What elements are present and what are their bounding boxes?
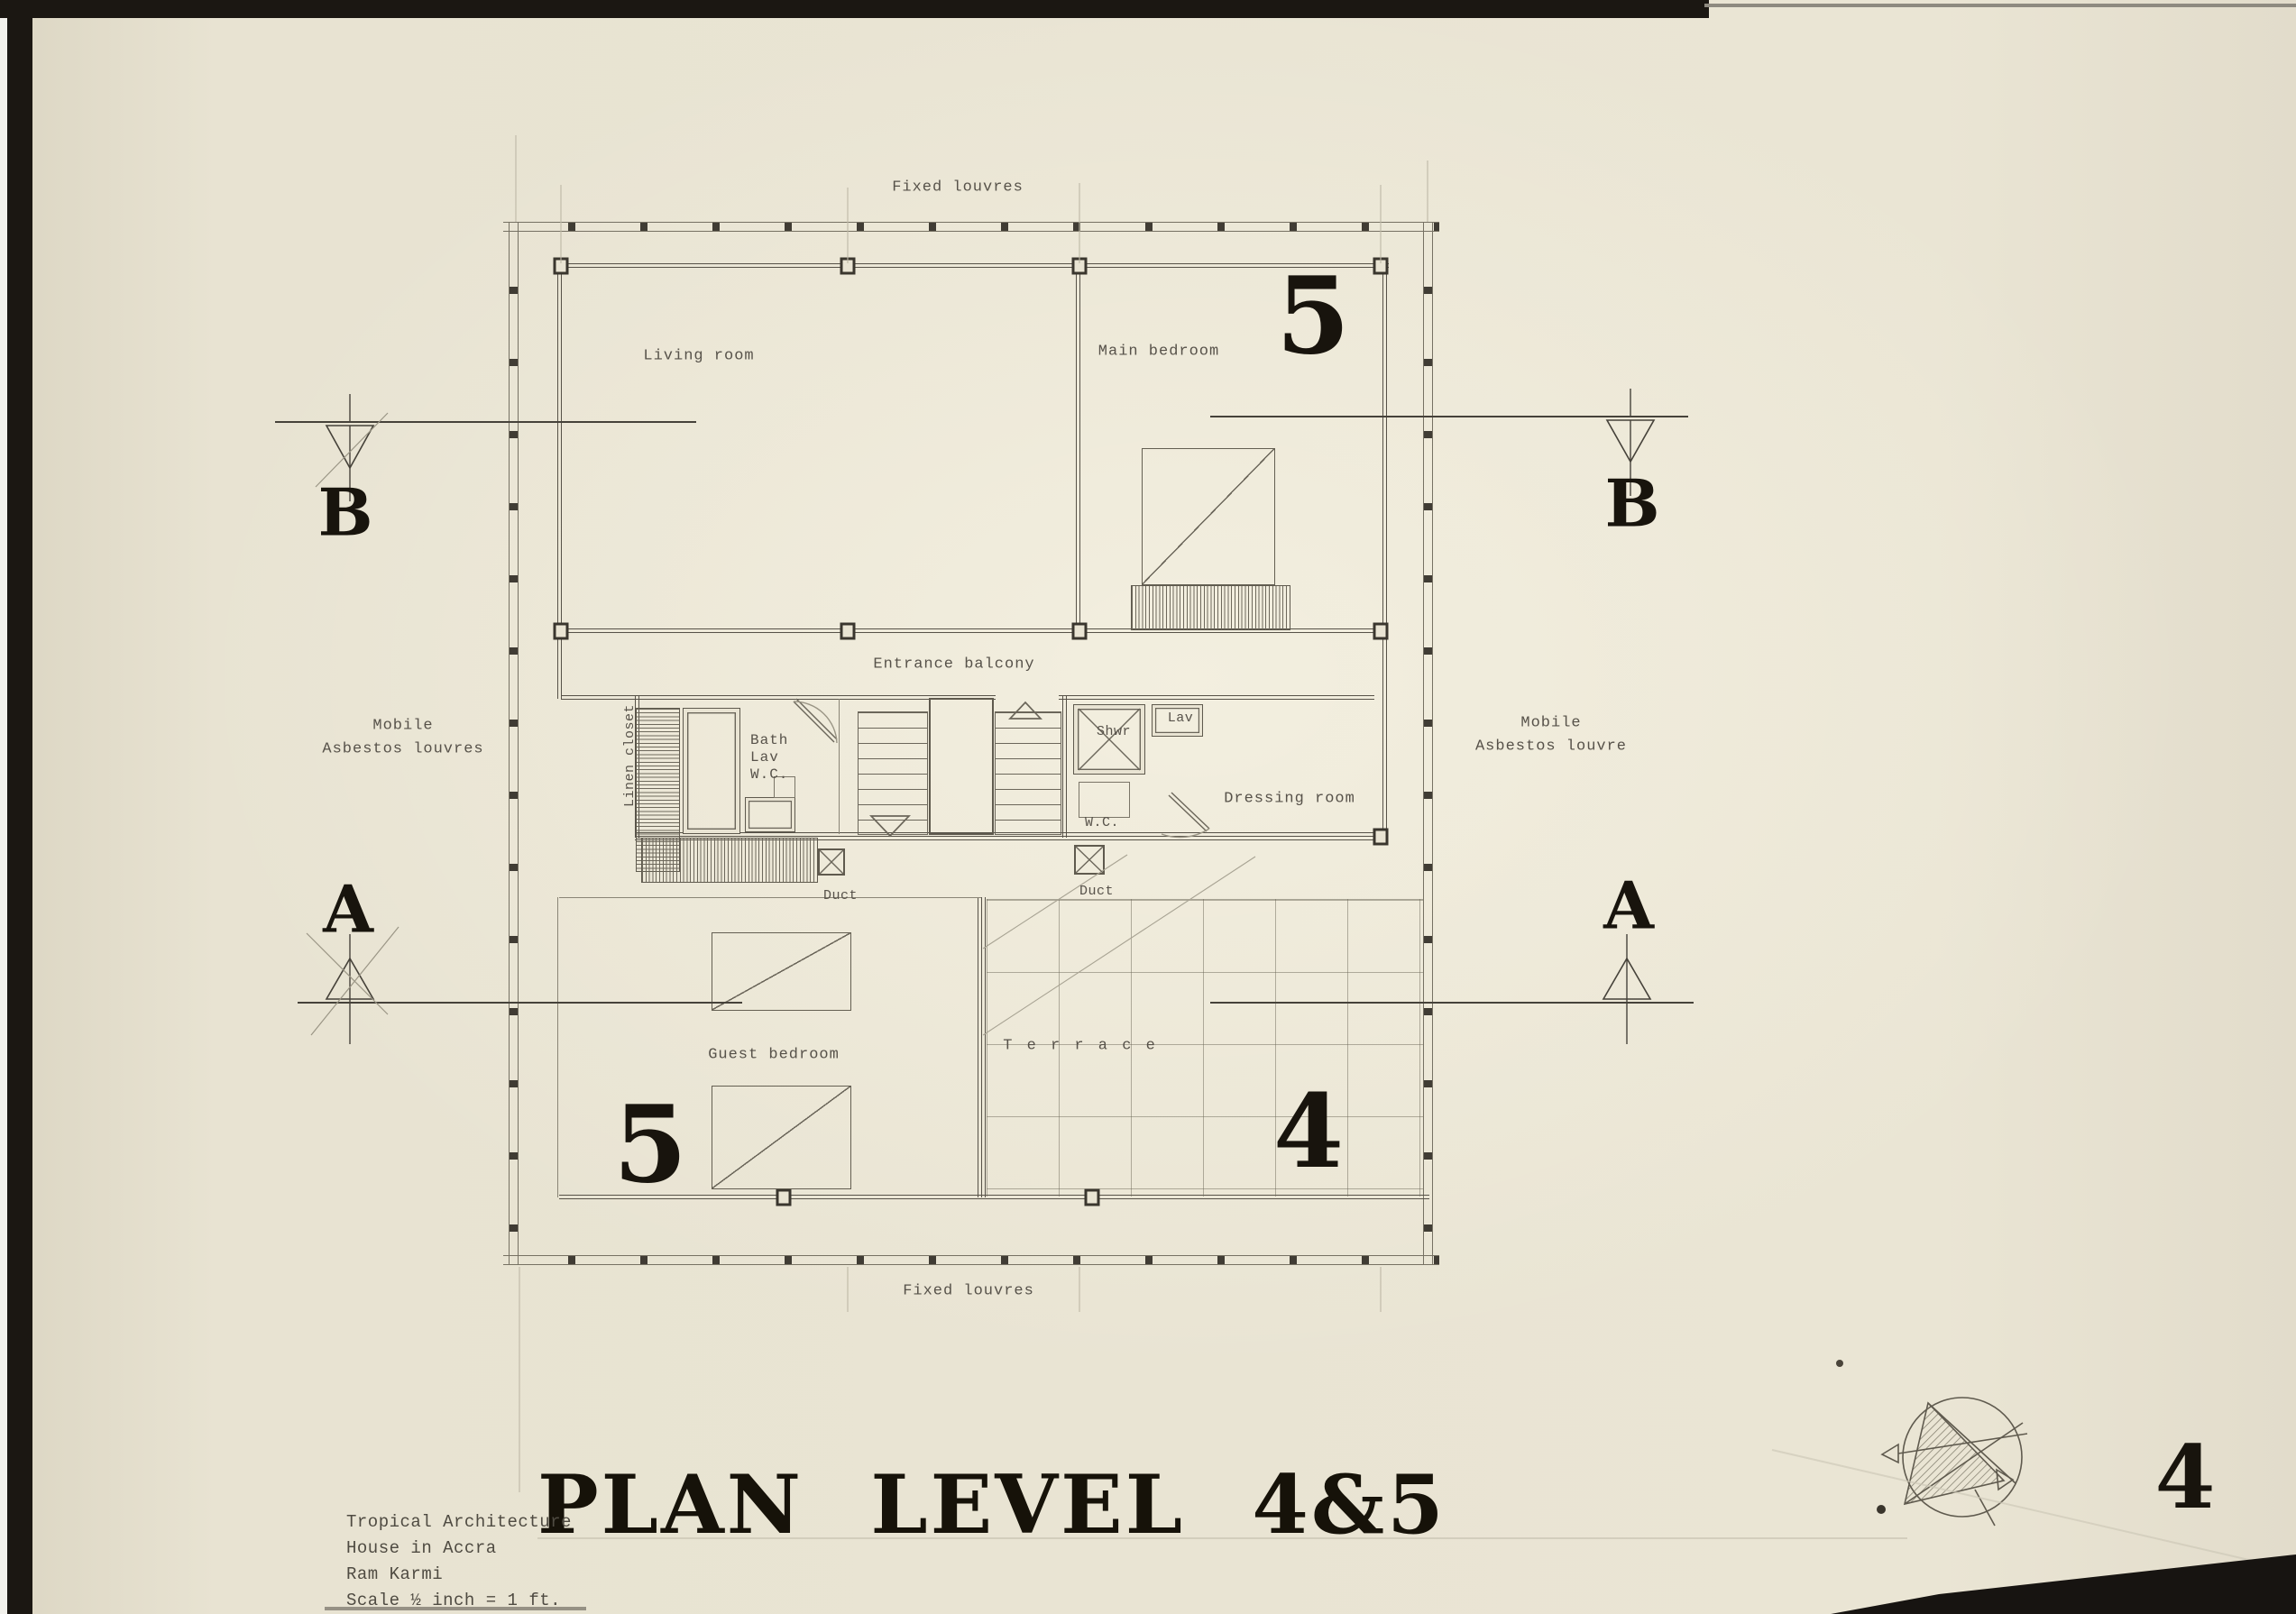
sheet-number: 4 — [2155, 1435, 2216, 1521]
stair-flight-up — [995, 711, 1061, 835]
scan-edge-left — [7, 0, 32, 1614]
label-fixed-louvres-top: Fixed louvres — [892, 176, 1024, 199]
scan-edge-top-right — [1704, 4, 2296, 7]
label-main-bedroom: Main bedroom — [1098, 340, 1219, 363]
scan-edge-left-sliver — [0, 0, 7, 1614]
column — [1373, 829, 1389, 846]
wall — [1382, 263, 1387, 840]
wall — [839, 699, 840, 834]
label-lavatory: Lav — [1168, 709, 1194, 729]
wall — [559, 897, 981, 898]
wardrobe — [683, 708, 740, 834]
column — [1373, 258, 1389, 275]
stair-void — [929, 698, 994, 835]
wall — [559, 263, 1389, 268]
sheet-title: PLAN LEVEL 4&5 — [537, 1464, 1446, 1545]
column — [840, 258, 856, 275]
label-entrance-balcony: Entrance balcony — [873, 653, 1034, 676]
pencil-speck — [1836, 1360, 1843, 1367]
label-living-room: Living room — [643, 344, 754, 368]
drawing-sheet: Fixed louvres Fixed louvres Mobile Asbes… — [0, 0, 2296, 1614]
column — [1373, 623, 1389, 640]
louvre-wall-bottom — [503, 1255, 1439, 1265]
pencil-dot — [1877, 1505, 1886, 1514]
louvre-wall-top — [503, 222, 1439, 232]
wall — [1076, 263, 1080, 635]
north-compass — [1882, 1398, 2027, 1526]
drawing-linework — [0, 0, 2296, 1614]
label-terrace: T e r r a c e — [1003, 1034, 1158, 1058]
label-shower: Shwr — [1097, 722, 1131, 743]
stair-flight-down — [858, 711, 928, 835]
label-guest-bedroom: Guest bedroom — [708, 1043, 840, 1067]
wall — [557, 897, 558, 1197]
label-wc: W.C. — [1085, 813, 1119, 834]
level-number-5-upper: 5 — [1276, 263, 1350, 370]
label-duct-left: Duct — [823, 886, 858, 907]
column — [1072, 623, 1088, 640]
label-duct-right: Duct — [1079, 882, 1114, 903]
scan-edge-top — [0, 0, 1709, 18]
bed-guest-2 — [712, 1086, 851, 1189]
wardrobe-hatch — [641, 838, 818, 883]
wall — [978, 897, 986, 1197]
bed-guest-1 — [712, 932, 851, 1011]
credit-line: House in Accra — [346, 1536, 572, 1562]
paper-crease — [1772, 1450, 2296, 1571]
column — [554, 258, 569, 275]
column — [776, 1189, 792, 1206]
louvre-wall-left — [509, 222, 519, 1265]
credit-line: Ram Karmi — [346, 1562, 572, 1588]
bathtub — [745, 797, 795, 832]
column — [554, 623, 569, 640]
duct-box-left — [818, 848, 845, 876]
level-number-5-lower: 5 — [613, 1092, 687, 1198]
column — [840, 623, 856, 640]
credit-line: Tropical Architecture — [346, 1509, 572, 1536]
section-letter-a-left: A — [323, 877, 373, 942]
section-letter-a-right: A — [1603, 874, 1654, 939]
wall — [1059, 695, 1374, 700]
column — [1072, 258, 1088, 275]
label-fixed-louvres-bottom: Fixed louvres — [903, 1279, 1034, 1303]
label-linen-closet: Linen closet — [620, 704, 641, 807]
credit-line: Scale ½ inch = 1 ft. — [346, 1588, 572, 1614]
louvre-wall-right — [1423, 222, 1433, 1265]
bedroom-wardrobe-hatch — [1131, 585, 1290, 630]
scan-edge-bottom — [0, 0, 2296, 1614]
label-bath-lav-wc: Bath Lav W.C. — [750, 732, 788, 784]
credit-block: Tropical Architecture House in Accra Ram… — [346, 1509, 572, 1614]
label-mobile-louvres-left: Mobile Asbestos louvres — [322, 715, 483, 761]
section-letter-b-left: B — [318, 481, 373, 546]
section-letter-b-right: B — [1605, 472, 1660, 536]
level-number-4-terrace: 4 — [1273, 1082, 1344, 1183]
duct-box-right — [1074, 845, 1105, 875]
bed-main-bedroom — [1142, 448, 1275, 585]
label-dressing-room: Dressing room — [1224, 787, 1355, 811]
label-mobile-louvre-right: Mobile Asbestos louvre — [1475, 712, 1627, 758]
wall — [1062, 695, 1067, 838]
